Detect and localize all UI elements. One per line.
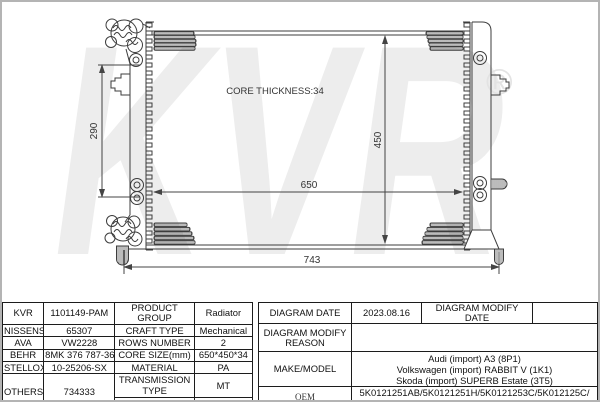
- spec-core-size-label: CORE SIZE(mm): [115, 349, 194, 361]
- radiator-diagram: KVR ®: [2, 2, 598, 302]
- brand-nissens-label: NISSENS: [3, 324, 44, 336]
- right-threaded-stub: [491, 179, 507, 189]
- drain-plug: [117, 246, 129, 265]
- spec-transmission-label: TRANSMISSION TYPE: [115, 374, 194, 398]
- diagram-modify-date-label: DIAGRAM MODIFY DATE: [422, 303, 533, 324]
- brand-nissens-value: 65307: [44, 324, 115, 336]
- brand-stellox-label: STELLOX: [3, 361, 44, 373]
- application-table: DIAGRAM DATE 2023.08.16 DIAGRAM MODIFY D…: [258, 302, 598, 402]
- spec-material-label: MATERIAL: [115, 361, 194, 373]
- spec-supplementary-label: SUPPLEMENTARY: [115, 397, 194, 402]
- brand-kvr-label: KVR: [3, 303, 44, 325]
- diagram-modify-date-value: [533, 303, 598, 324]
- diagram-date-label: DIAGRAM DATE: [259, 303, 352, 324]
- fin-block-top-right: [426, 32, 463, 51]
- brand-ava-value: VW2228: [44, 337, 115, 349]
- brand-others-value: 734333: [44, 374, 115, 402]
- diagram-modify-reason-label: DIAGRAM MODIFY REASON: [259, 324, 352, 352]
- dim-port-spacing: 290: [89, 122, 100, 139]
- brand-behr-label: BEHR: [3, 349, 44, 361]
- brand-stellox-value: 10-25206-SX: [44, 361, 115, 373]
- spec-tables: KVR 1101149-PAM PRODUCT GROUP Radiator N…: [2, 302, 598, 402]
- dim-overall-width: 743: [304, 255, 321, 266]
- oem-value: 5K0121251AB/5K0121251H/5K0121253C/5K0121…: [352, 387, 598, 402]
- spec-product-group-value: Radiator: [194, 303, 252, 325]
- brand-behr-value: 8MK 376 787-361: [44, 349, 115, 361]
- brand-others-label: OTHERS: [3, 374, 44, 402]
- diagram-modify-reason-value: [352, 324, 598, 352]
- make-model-line-2: Volkswagen (import) RABBIT V (1K1): [353, 364, 596, 375]
- spec-craft-type-label: CRAFT TYPE: [115, 324, 194, 336]
- brand-spec-table: KVR 1101149-PAM PRODUCT GROUP Radiator N…: [2, 302, 253, 402]
- core-thickness-label: CORE THICKNESS:34: [226, 86, 324, 97]
- spec-supplementary-value: [194, 397, 252, 402]
- spec-rows-number-label: ROWS NUMBER: [115, 337, 194, 349]
- make-model-value: Audi (import) A3 (8P1) Volkswagen (impor…: [352, 352, 598, 387]
- make-model-label: MAKE/MODEL: [259, 352, 352, 387]
- catalog-page: KVR ®: [0, 0, 600, 402]
- brand-ava-label: AVA: [3, 337, 44, 349]
- make-model-line-3: Skoda (import) SUPERB Estate (3T5): [353, 375, 596, 386]
- spec-product-group-label: PRODUCT GROUP: [115, 303, 194, 325]
- fin-block-top-left: [154, 32, 196, 51]
- make-model-line-1: Audi (import) A3 (8P1): [353, 353, 596, 364]
- diagram-date-value: 2023.08.16: [352, 303, 422, 324]
- spec-craft-type-value: Mechanical: [194, 324, 252, 336]
- oem-line-2: 1K0.121.253 K/1K0.121.251K: [353, 398, 596, 402]
- dim-core-height: 450: [373, 131, 384, 148]
- brand-kvr-value: 1101149-PAM: [44, 303, 115, 325]
- spec-material-value: PA: [194, 361, 252, 373]
- spec-core-size-value: 650*450*34: [194, 349, 252, 361]
- oem-line-1: 5K0121251AB/5K0121251H/5K0121253C/5K0121…: [353, 387, 596, 398]
- spec-rows-number-value: 2: [194, 337, 252, 349]
- spec-transmission-value: MT: [194, 374, 252, 398]
- dim-core-width: 650: [301, 180, 318, 191]
- oem-label: OEM: [259, 387, 352, 402]
